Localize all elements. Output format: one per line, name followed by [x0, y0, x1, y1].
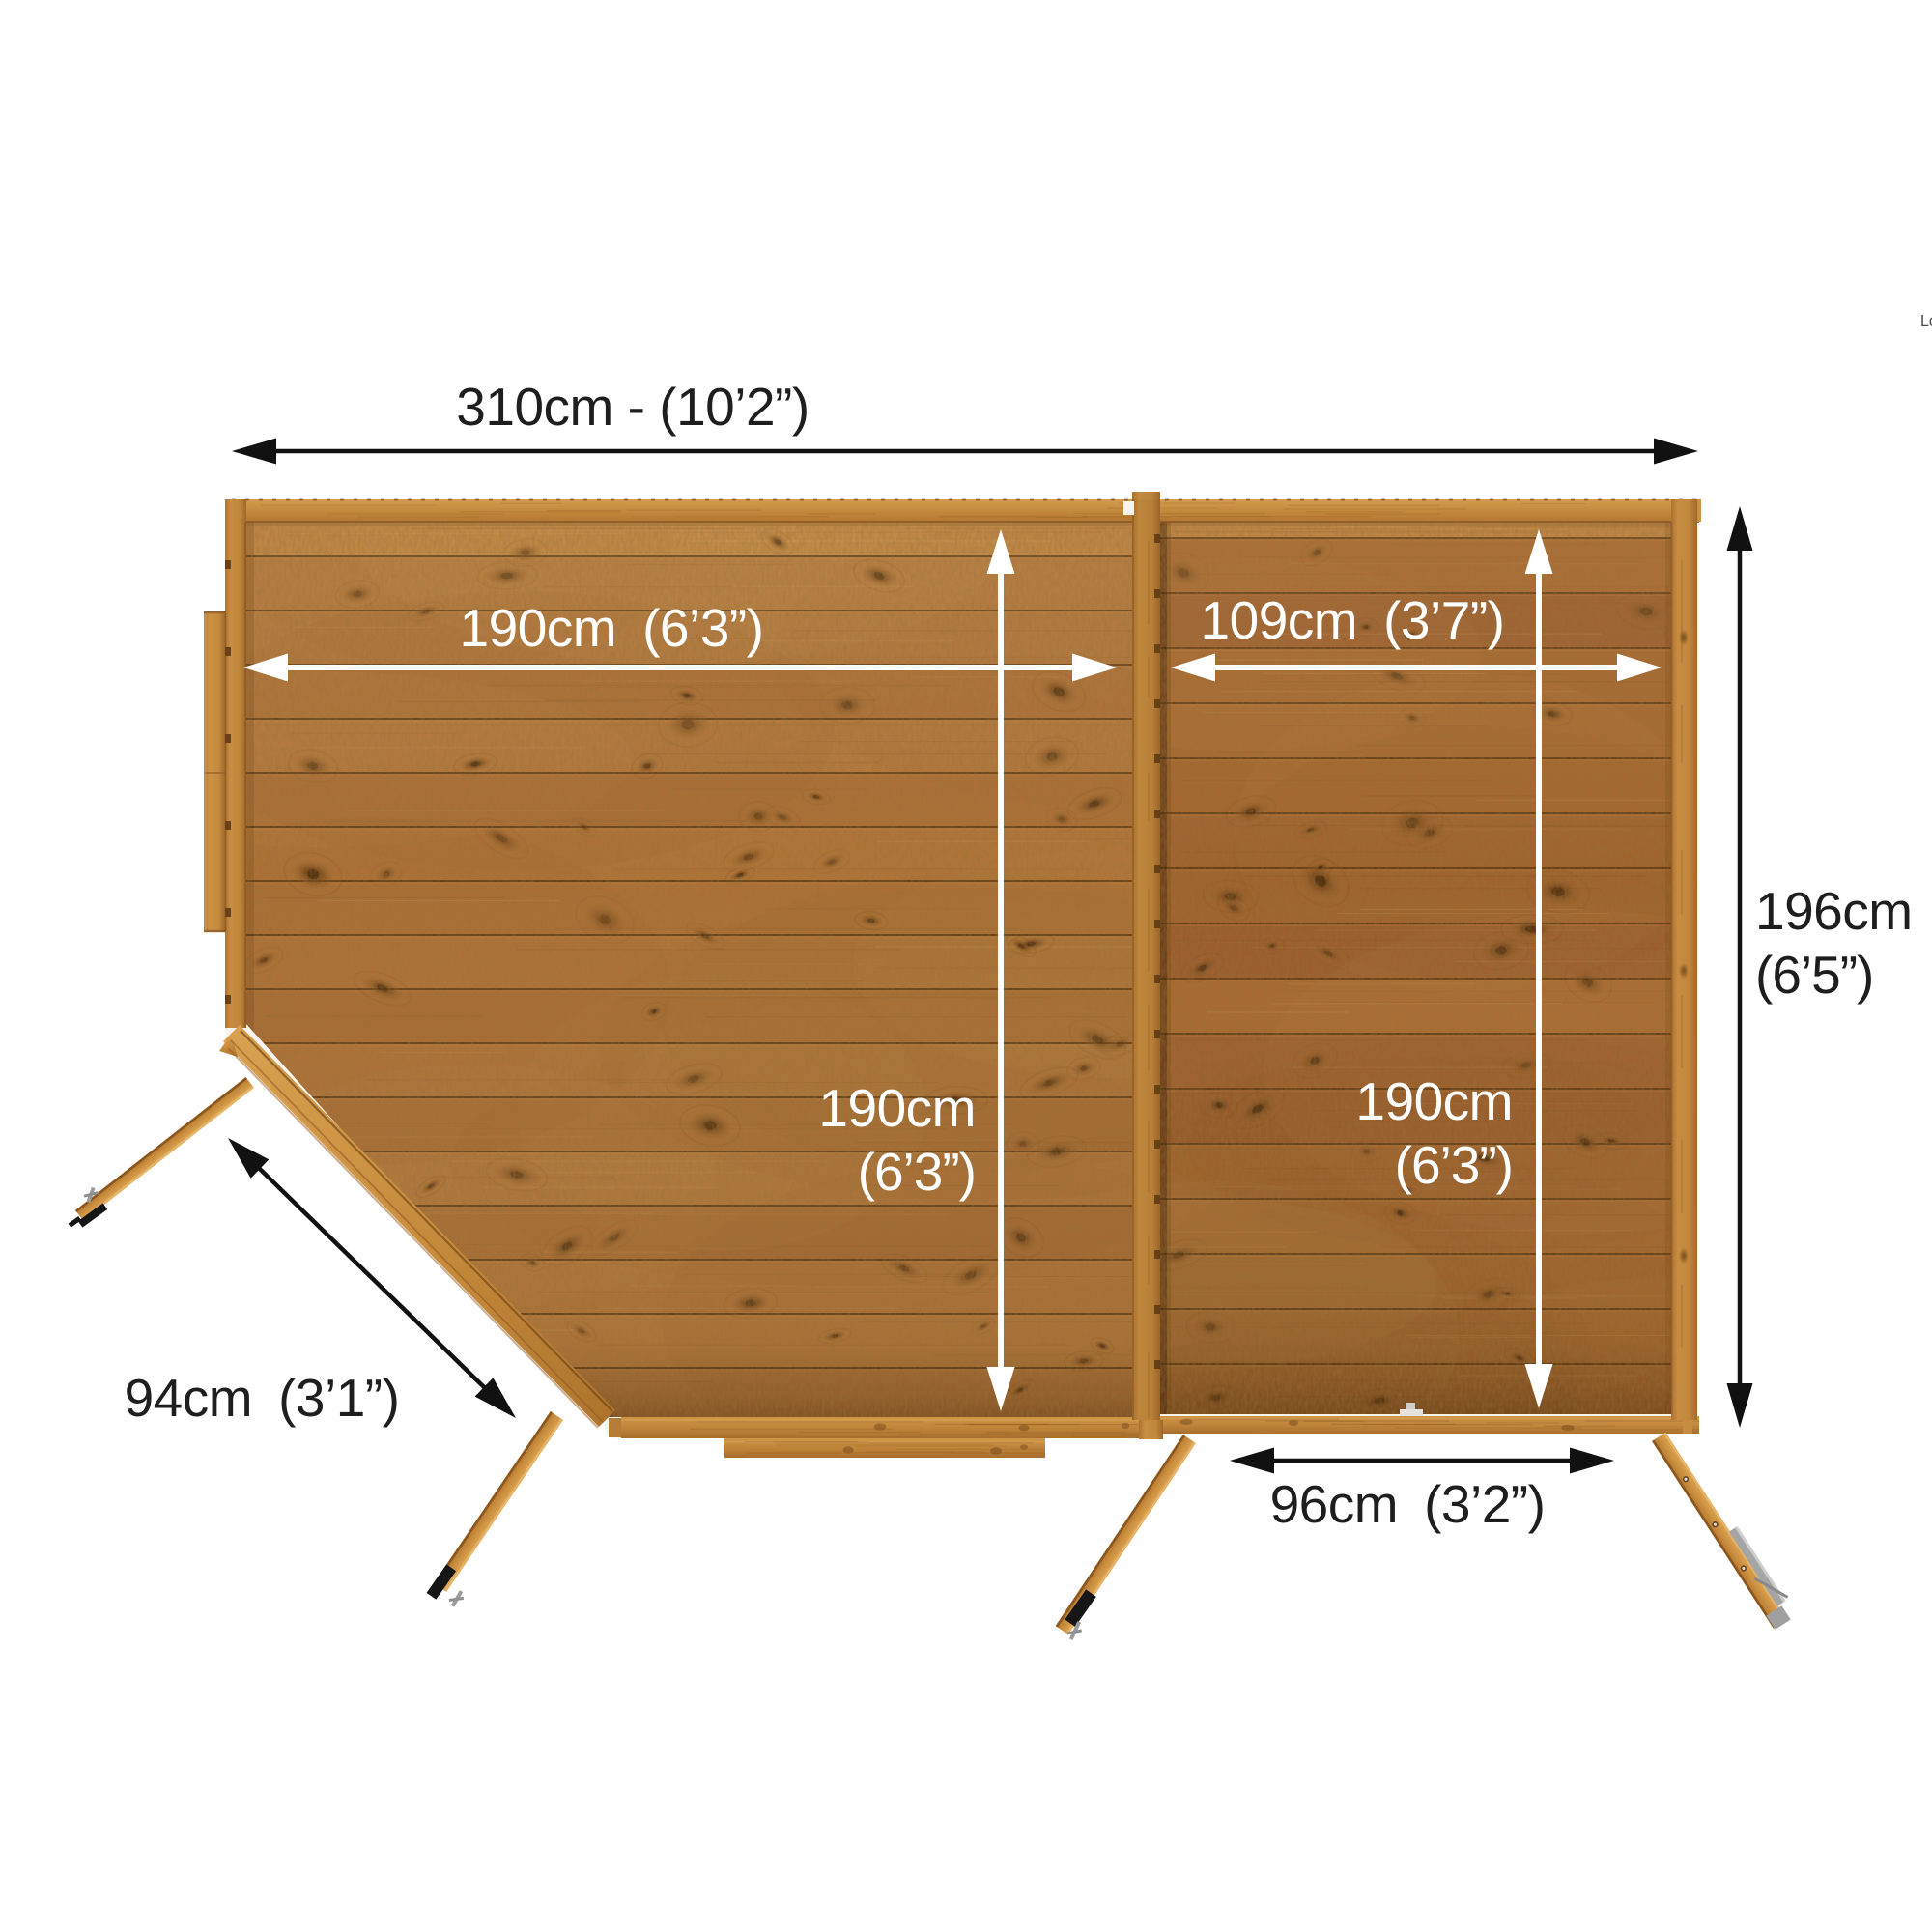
svg-text:94cm (3’1”): 94cm (3’1”) [125, 1368, 400, 1428]
svg-text:190cm (6’3”): 190cm (6’3”) [460, 598, 764, 658]
svg-text:190cm: 190cm [1355, 1071, 1513, 1131]
svg-text:(6’3”): (6’3”) [858, 1142, 976, 1202]
svg-text:96cm (3’2”): 96cm (3’2”) [1270, 1474, 1546, 1534]
svg-text:196cm: 196cm [1755, 881, 1913, 941]
svg-text:190cm: 190cm [818, 1078, 976, 1138]
svg-text:(6’5”): (6’5”) [1755, 945, 1873, 1005]
svg-text:(6’3”): (6’3”) [1395, 1135, 1513, 1195]
svg-text:Lo: Lo [1920, 313, 1932, 329]
svg-text:310cm - (10’2”): 310cm - (10’2”) [456, 377, 809, 437]
svg-text:109cm (3’7”): 109cm (3’7”) [1201, 590, 1505, 650]
